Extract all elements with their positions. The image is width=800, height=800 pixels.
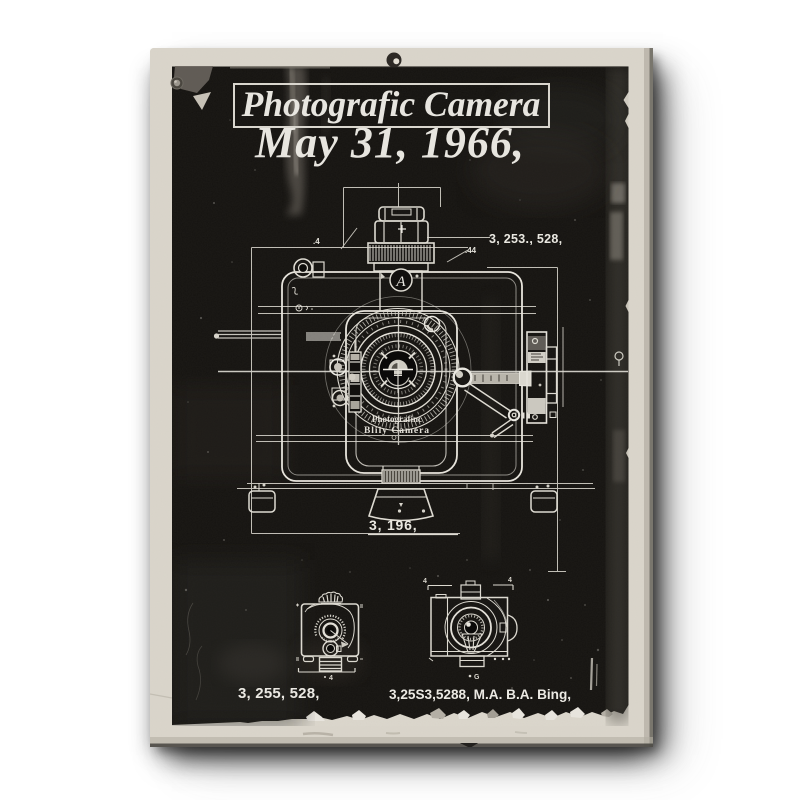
- svg-text:3, 253., 528,: 3, 253., 528,: [489, 232, 562, 246]
- svg-text:3, 196,: 3, 196,: [369, 517, 417, 533]
- svg-text:3, 255, 528,: 3, 255, 528,: [238, 685, 320, 702]
- svg-text:May 31, 1966,: May 31, 1966,: [254, 118, 525, 167]
- svg-text:G: G: [474, 674, 480, 681]
- svg-text:4: 4: [508, 577, 512, 584]
- svg-text:3,25S3,5288, M.A. B.A. Bing,: 3,25S3,5288, M.A. B.A. Bing,: [389, 687, 571, 702]
- svg-text:4: 4: [329, 675, 333, 682]
- svg-text:.44: .44: [465, 246, 477, 255]
- svg-text:A: A: [395, 274, 406, 290]
- svg-text:Photografinc: Photografinc: [372, 414, 422, 424]
- svg-text:4: 4: [423, 578, 427, 585]
- svg-text:Bliiy Camera: Bliiy Camera: [364, 426, 430, 436]
- svg-text:.4: .4: [313, 237, 320, 246]
